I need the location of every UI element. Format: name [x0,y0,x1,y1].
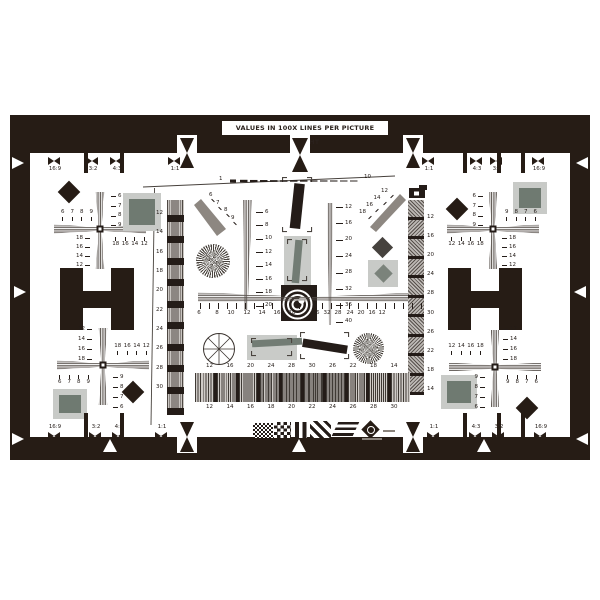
mark-number: 12 [76,263,83,269]
strip-segment [167,243,184,258]
mark-dash [113,397,118,398]
diag-right-label: 16 [366,203,373,209]
l-mark-v [311,227,312,232]
tick-number: 14 [130,242,140,248]
diag-left-label: 9 [231,216,235,222]
strip-segment [408,200,424,217]
block-label-top: 26 [327,364,339,370]
mark-dash [113,407,118,408]
tick-number: 9 [84,380,94,386]
cross-tick-group: 18161412 [111,235,149,248]
l-mark-v [348,354,349,359]
left-wedge-tick [256,266,263,267]
block-label-bottom: 16 [245,405,257,411]
block-label-bottom: 20 [286,405,298,411]
mark-number: 14 [76,254,83,260]
tick-cell [111,237,121,241]
diag-right-label: 18 [359,210,366,216]
right-wedge-tick [336,256,343,257]
diag-right-label: 14 [374,196,381,202]
cross-side-mark: 9 [463,375,485,381]
tick-cell [113,351,123,355]
block-label-bottom: 14 [224,405,236,411]
tick [536,375,537,379]
siemens-star-upper [196,244,230,278]
tick-cell [457,351,467,355]
cross-arm-bottom [96,229,104,269]
vertical-wedge-right [327,203,333,325]
left-wedge-tick [256,279,263,280]
tick [62,217,63,221]
arrow-left-icon [476,157,482,165]
tick-number: 16 [466,344,476,350]
cross-arm-top [99,328,107,365]
strip-segment [167,372,184,387]
block-label-top: 30 [306,364,318,370]
test-chart-page: VALUES IN 100X LINES PER PICTURE HEIGHT [0,0,600,600]
tick-number: 8 [512,210,522,216]
mark-dash [478,206,483,207]
white-arrow-icon [576,157,588,169]
resolution-block [366,373,388,402]
strip-separator [167,387,184,394]
cross-tick-group: 6789 [58,210,96,223]
arrow-left-icon [54,157,60,165]
cross-side-mark: 18 [68,236,90,242]
mark-dash [502,247,507,248]
divider-bar [84,143,88,173]
strip-separator [167,258,184,265]
hourglass-marker-up [406,437,420,452]
tick-number: 18 [111,242,121,248]
strip-segment [167,329,184,344]
scale-dash [350,181,358,182]
tick-cell [531,217,541,221]
mark-number: 9 [120,375,124,381]
tick-cell [68,217,78,221]
hruler-tick-left [290,303,291,309]
tick [127,351,128,355]
bowtie-marker [534,432,548,441]
aspect-label-bottom: 4:3 [466,425,486,431]
iso-resolution-chart: VALUES IN 100X LINES PER PICTURE HEIGHT [10,115,590,460]
tick-cell [142,351,152,355]
mark-number: 6 [475,405,479,411]
left-wedge-label: 6 [265,210,269,216]
strip-separator [167,236,184,243]
right-wedge-tick [336,273,343,274]
tick-number: 16 [121,242,131,248]
tick-number: 9 [502,210,512,216]
strip-segment [408,317,424,334]
tick [517,375,518,379]
hruler-tick-left [263,303,264,309]
tick [535,217,536,221]
mark-dash [478,225,483,226]
strip-segment [167,286,184,301]
aspect-label-top: 16:9 [45,167,65,173]
hruler-tick-left [308,303,309,309]
cross-side-mark: 18 [503,357,525,363]
left-wedge-label: 14 [265,263,272,269]
tick-number: 14 [457,242,467,248]
white-arrow-icon [574,286,586,298]
tick [115,237,116,241]
strip-segment [408,239,424,256]
mark-dash [480,407,485,408]
arrow-left-icon [161,432,167,440]
l-mark-v [306,276,307,281]
right-wedge-tick [336,240,343,241]
l-mark-v [251,338,252,343]
tick [72,217,73,221]
mark-dash [87,359,92,360]
bowtie-marker [48,157,62,166]
divider-bar [497,143,501,173]
strip-label-left: 18 [143,269,163,275]
checkerboard-coarse [274,422,291,438]
strip-separator [167,215,184,222]
hourglass-marker-up [180,437,194,452]
right-wedge-label: 12 [345,205,352,211]
strip-separator [167,344,184,351]
tick-cell [140,237,150,241]
hruler-tick-right [340,303,341,309]
tick-cell [55,375,65,379]
hruler-tick-right [331,303,332,309]
strip-segment [167,351,184,366]
strip-label-left: 30 [143,385,163,391]
mark-number: 8 [475,385,479,391]
mark-dash [87,329,92,330]
mark-number: 6 [118,194,122,200]
cross-tick-group: 9876 [502,210,540,223]
tick [451,237,452,241]
block-label-top: 18 [368,364,380,370]
tick-cell [74,375,84,379]
block-label-top: 24 [265,364,277,370]
logo-microtext-2 [362,438,382,440]
tick [146,351,147,355]
tick-number: 6 [532,380,542,386]
cross-center-dot [102,364,105,367]
cross-side-mark: 8 [111,213,133,219]
resolution-block [236,373,258,402]
cross-side-mark: 8 [113,385,135,391]
tick-cell [521,217,531,221]
white-up-arrow-icon [103,439,117,452]
cross-side-mark: 7 [463,395,485,401]
strip-segment [408,356,424,373]
block-label-top: 28 [286,364,298,370]
strip-label-right: 22 [427,349,434,355]
scale-dash [260,180,268,182]
aspect-label-top: 1:1 [419,167,439,173]
mark-number: 16 [509,245,516,251]
block-label-top: 12 [204,364,216,370]
hourglass-marker-up [180,153,194,168]
right-wedge-tick [336,207,343,208]
cross-side-mark: 6 [111,194,133,200]
mark-number: 9 [475,375,479,381]
mark-dash [480,397,485,398]
tick-cell [123,351,133,355]
block-label-bottom: 12 [204,405,216,411]
tick-cell [457,237,467,241]
white-arrow-icon [576,433,588,445]
bowtie-marker [427,432,441,441]
cross-center-dot [99,228,102,231]
white-arrow-icon [12,157,24,169]
block-label-bottom: 24 [327,405,339,411]
mark-number: 18 [510,357,517,363]
tick-marks [58,217,96,221]
tick [59,375,60,379]
scale-end-label: 10 [364,175,371,181]
hourglass-marker-down [180,422,194,437]
tick [81,217,82,221]
tick [144,237,145,241]
tick [88,375,89,379]
gray-diamond [374,264,392,282]
hruler-tick-right [421,303,422,309]
tick-marks [447,351,485,355]
mark-dash [111,206,116,207]
tick [461,351,462,355]
mark-dash [85,247,90,248]
hruler-label-left: 16 [271,311,283,317]
tick-marks [111,237,149,241]
tick [470,351,471,355]
strip-label-right: 30 [427,311,434,317]
left-wedge-label: 20 [265,303,272,309]
aspect-label-bottom: 4:3 [109,425,129,431]
cross-side-mark: 9 [113,375,135,381]
strip-segment [408,337,424,354]
white-up-arrow-icon [292,439,306,452]
bowtie-marker [48,432,62,441]
tick-marks [502,217,540,221]
divider-bar [120,143,124,173]
scale-dash [270,180,278,182]
cross-arm-bottom [491,367,499,407]
right-wedge-tick [336,322,343,323]
cross-side-mark: 8 [461,213,483,219]
tick-number: 7 [68,210,78,216]
tick-cell [121,237,131,241]
tick-cell [58,217,68,221]
strip-label-right: 24 [427,272,434,278]
aspect-label-bottom: 16:9 [531,425,551,431]
vertical-bars-pattern [295,422,307,438]
scale-dash [280,180,288,182]
tick [69,375,70,379]
tick-numbers: 6789 [55,380,93,386]
aspect-label-bottom: 16:9 [45,425,65,431]
mark-dash [503,349,508,350]
block-label-bottom: 30 [388,405,400,411]
mark-number: 18 [76,236,83,242]
white-arrow-icon [12,433,24,445]
right-wedge-label: 24 [345,254,352,260]
scale-dash [330,180,338,181]
hourglass-marker-down [406,422,420,437]
hruler-tick-right [367,303,368,309]
cross-arm-bottom [99,365,107,405]
tick-cell [447,351,457,355]
cross-tick-group: 9876 [503,373,541,386]
diag-right-label: 12 [381,189,388,195]
strip-label-left: 16 [143,250,163,256]
arrow-left-icon [92,157,98,165]
tick-number: 18 [476,344,486,350]
strip-label-left: 28 [143,366,163,372]
cross-side-mark: 16 [502,245,524,251]
h-bar-target-left [60,268,134,330]
tick [91,217,92,221]
tick-number: 6 [55,380,65,386]
strip-separator [408,392,424,395]
tick-cell [447,237,457,241]
cross-side-mark: 16 [70,347,92,353]
slanted-edge-bar-top [290,183,305,229]
hourglass-marker-up [292,155,308,172]
bowtie-marker [470,157,484,166]
tick-numbers: 18161412 [111,242,149,248]
mark-number: 8 [118,213,122,219]
tick-number: 12 [447,344,457,350]
mark-number: 14 [509,254,516,260]
hourglass-marker-down [180,138,194,153]
tick [507,375,508,379]
tick [125,237,126,241]
l-mark-v [282,227,283,232]
mark-dash [111,216,116,217]
tick-number: 16 [123,344,133,350]
tick-numbers: 9876 [503,380,541,386]
left-wedge-label: 18 [265,290,272,296]
mark-dash [85,265,90,266]
strip-separator [167,279,184,286]
cross-arm-top [491,330,499,367]
mark-number: 8 [473,213,477,219]
hruler-tick-right [349,303,350,309]
white-arrow-icon [14,286,26,298]
divider-bar [463,143,467,173]
slanted-line [143,176,395,187]
l-mark-v [287,239,288,244]
gray-patch-tr-inner [519,188,541,208]
resolution-block [301,373,323,402]
vertical-wedge-left [243,200,252,310]
mark-dash [87,349,92,350]
cross-arm-top [96,192,104,229]
scale-dash [300,180,308,181]
strip-segment [167,308,184,323]
cross-side-mark: 6 [113,405,135,411]
divider-bar [497,413,501,449]
bowtie-marker [155,432,169,441]
tick-cell [466,351,476,355]
resolution-block [345,373,367,402]
mark-dash [111,225,116,226]
cross-side-mark: 7 [113,395,135,401]
block-label-top: 14 [388,364,400,370]
scale-dash [250,180,258,182]
tick-marks [55,375,93,379]
cross-tick-group: 12141618 [447,235,485,248]
block-label-top: 16 [224,364,236,370]
right-wedge-label: 28 [345,270,352,276]
left-wedge-label: 12 [265,250,272,256]
strip-segment [408,376,424,393]
cross-arm-left [449,363,495,372]
tick-cell [77,217,87,221]
left-wedge-tick [256,306,263,307]
tick-number: 12 [140,242,150,248]
resolution-block [195,373,214,402]
l-mark-v [300,354,301,359]
mark-dash [85,256,90,257]
mark-number: 12 [510,327,517,333]
tick-cell [130,237,140,241]
tick-cell [466,237,476,241]
strip-label-right: 12 [427,215,434,221]
tick [134,237,135,241]
block-label-bottom: 26 [347,405,359,411]
mark-number: 7 [473,204,477,210]
block-label-bottom: 28 [368,405,380,411]
tick-cell [532,375,542,379]
white-up-arrow-icon [477,439,491,452]
resolution-block [257,373,279,402]
resolution-block [279,373,301,402]
strip-label-right: 26 [427,330,434,336]
scale-dash [290,180,298,181]
strip-label-right: 28 [427,291,434,297]
scale-dash [320,180,328,181]
cross-side-mark: 14 [502,254,524,260]
arrow-left-icon [95,432,101,440]
mark-number: 16 [78,347,85,353]
tick-number: 8 [74,380,84,386]
divider-bar [521,143,525,173]
left-wedge-label: 8 [265,223,269,229]
mark-dash [478,196,483,197]
slanted-edge-bar-bottom [302,339,348,354]
tick-cell [476,351,486,355]
tick [461,237,462,241]
strip-segment [167,222,184,237]
left-wedge-label: 16 [265,277,272,283]
tick-numbers: 12141618 [447,242,485,248]
tick-number: 9 [503,380,513,386]
hruler-label-right: 28 [332,311,344,317]
mark-number: 12 [509,263,516,269]
cross-side-mark: 12 [503,327,525,333]
cross-side-mark: 16 [68,245,90,251]
scale-dash [230,180,236,183]
strip-segment [167,265,184,280]
mark-number: 9 [118,223,122,229]
tick-number: 7 [522,380,532,386]
hruler-tick-right [385,303,386,309]
mark-dash [87,339,92,340]
block-label-bottom: 22 [306,405,318,411]
siemens-star-lower [353,333,384,364]
cross-side-mark: 14 [503,337,525,343]
mark-dash [113,377,118,378]
